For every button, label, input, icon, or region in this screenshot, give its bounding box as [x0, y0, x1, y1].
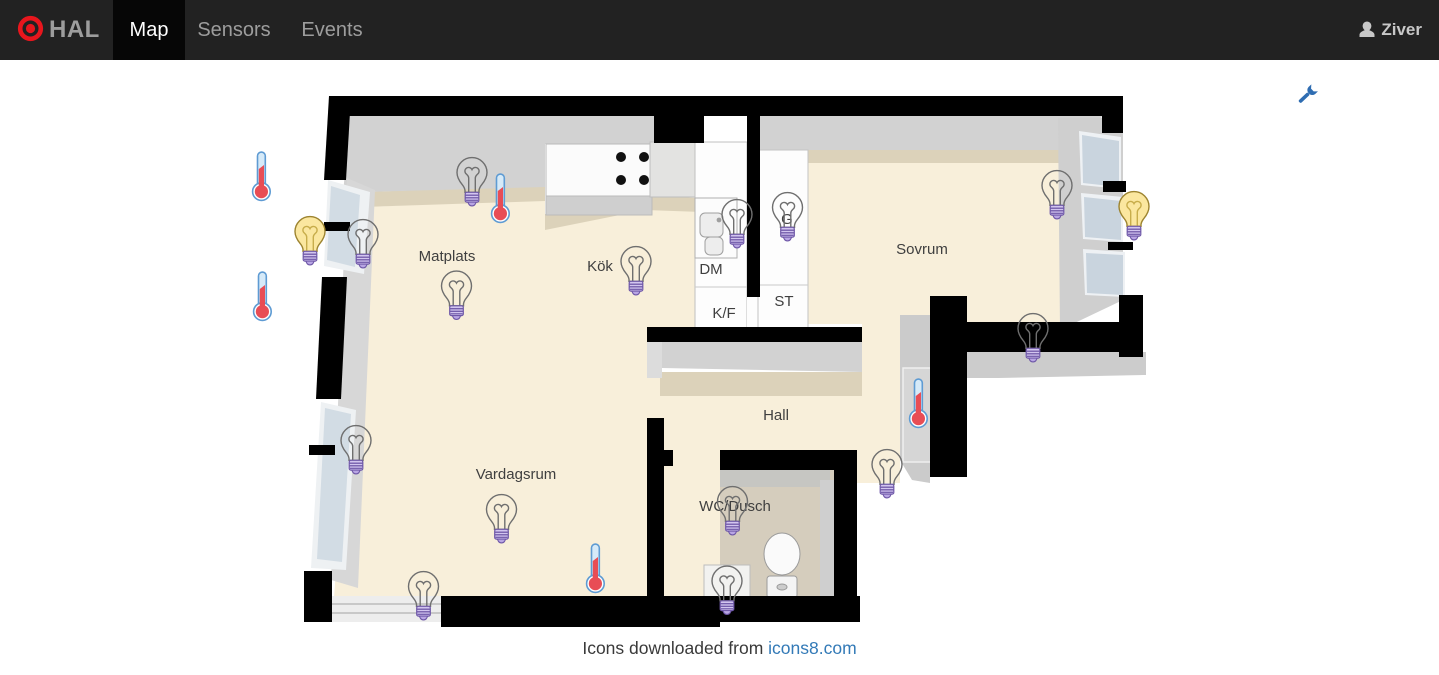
- svg-text:WC/Dusch: WC/Dusch: [699, 498, 771, 515]
- svg-text:Sovrum: Sovrum: [896, 241, 948, 258]
- svg-text:Vardagsrum: Vardagsrum: [476, 466, 557, 483]
- svg-text:ST: ST: [774, 293, 793, 310]
- svg-text:Kök: Kök: [587, 258, 613, 275]
- svg-text:K/F: K/F: [712, 305, 735, 322]
- svg-text:DM: DM: [699, 261, 722, 278]
- svg-text:Matplats: Matplats: [419, 248, 476, 265]
- svg-text:Hall: Hall: [763, 407, 789, 424]
